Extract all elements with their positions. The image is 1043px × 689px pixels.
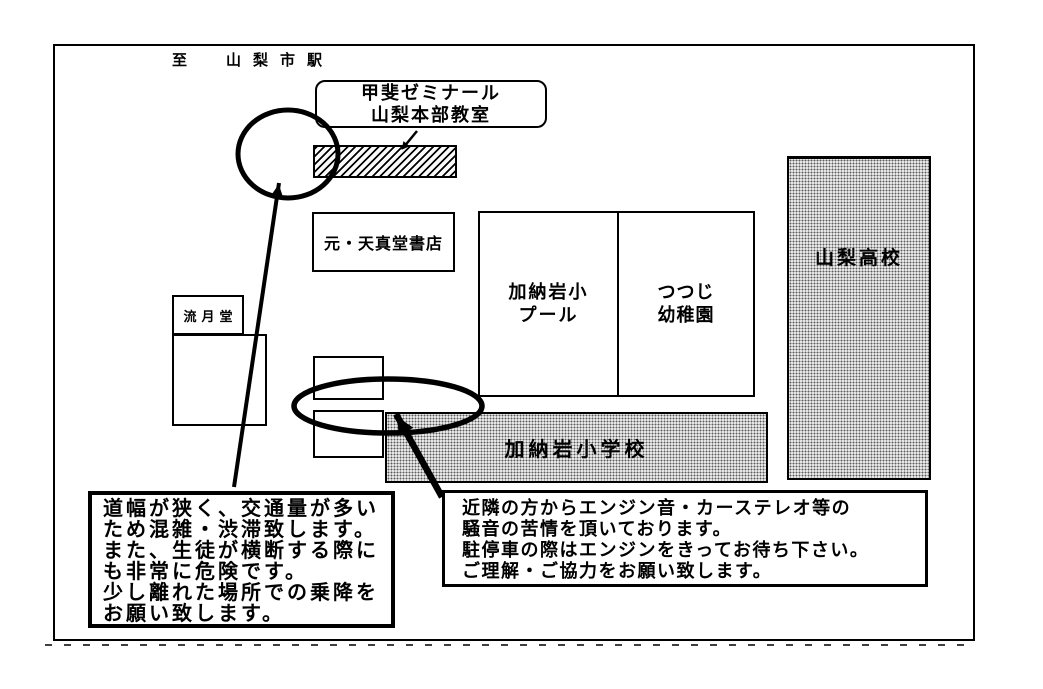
ryugetsudo-building bbox=[172, 334, 267, 426]
pool-box: 加納岩小 プール bbox=[478, 211, 619, 397]
target-name-line1: 甲斐ゼミナール bbox=[361, 82, 501, 104]
former-bookstore-label: 元・天真堂書店 bbox=[324, 230, 443, 254]
target-building-hatched bbox=[313, 145, 457, 178]
small-building-1 bbox=[313, 356, 384, 400]
right-warning-line: 駐停車の際はエンジンをきってお待ち下さい。 bbox=[462, 540, 921, 561]
elementary-school-band: 加納岩小学校 bbox=[385, 412, 768, 483]
pool-label-line1: 加納岩小 bbox=[509, 281, 589, 304]
target-name-line2: 山梨本部教室 bbox=[371, 104, 491, 126]
elementary-school-label: 加納岩小学校 bbox=[505, 433, 649, 462]
left-warning-line: も非常に危険です。 bbox=[103, 562, 387, 583]
ryugetsudo-label: 流月堂 bbox=[183, 306, 237, 325]
right-warning-box: 近隣の方からエンジン音・カーステレオ等の 騒音の苦情を頂いております。 駐停車の… bbox=[442, 490, 928, 587]
left-warning-line: また、生徒が横断する際に bbox=[103, 541, 387, 562]
highschool-label: 山梨高校 bbox=[815, 243, 903, 270]
small-building-2 bbox=[313, 410, 384, 458]
access-map-page: 至 山梨市駅 甲斐ゼミナール 山梨本部教室 元・天真堂書店 流月堂 加納岩小 プ… bbox=[0, 0, 1043, 689]
kindergarten-label-line2: 幼稚園 bbox=[658, 304, 715, 327]
former-bookstore-box: 元・天真堂書店 bbox=[312, 212, 455, 272]
kindergarten-label-line1: つつじ bbox=[658, 281, 715, 304]
highschool-box: 山梨高校 bbox=[787, 156, 931, 480]
ryugetsudo-label-box: 流月堂 bbox=[172, 295, 244, 335]
left-warning-box: 道幅が狭く、交通量が多い ため混雑・渋滞致します。 また、生徒が横断する際に も… bbox=[88, 491, 395, 628]
left-warning-line: 道幅が狭く、交通量が多い bbox=[103, 499, 387, 520]
station-direction-label: 至 山梨市駅 bbox=[172, 49, 334, 70]
left-warning-line: お願い致します。 bbox=[103, 604, 387, 625]
left-warning-line: ため混雑・渋滞致します。 bbox=[103, 520, 387, 541]
target-label-box: 甲斐ゼミナール 山梨本部教室 bbox=[315, 80, 547, 128]
pool-label-line2: プール bbox=[519, 304, 579, 327]
left-warning-line: 少し離れた場所での乗降を bbox=[103, 583, 387, 604]
kindergarten-box: つつじ 幼稚園 bbox=[617, 211, 755, 397]
right-warning-line: 騒音の苦情を頂いております。 bbox=[462, 519, 921, 540]
right-warning-line: ご理解・ご協力をお願い致します。 bbox=[462, 561, 921, 582]
right-warning-line: 近隣の方からエンジン音・カーステレオ等の bbox=[462, 498, 921, 519]
